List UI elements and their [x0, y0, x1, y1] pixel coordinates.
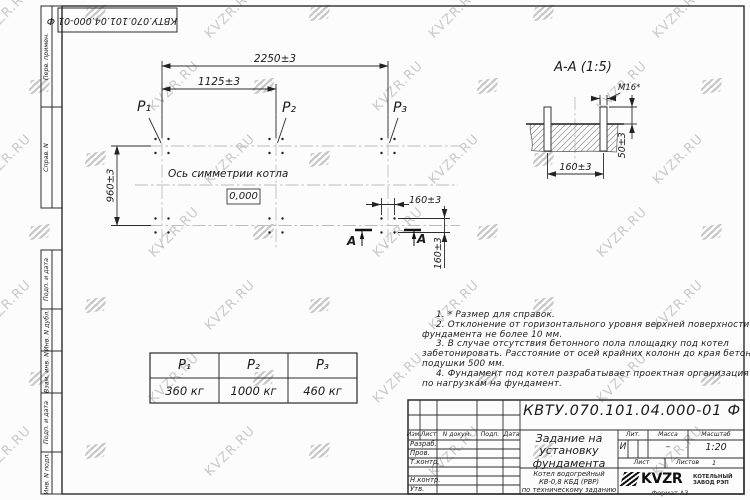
margin-label-podp-i-data-2: Подп. и дата — [41, 393, 52, 452]
kvzr-logo-text: KVZR — [641, 471, 682, 487]
title-name-line: установку — [520, 445, 618, 457]
frame-lines — [41, 6, 744, 494]
drawing-lineart — [0, 0, 750, 500]
tb-row-nkontr: Н.контр. — [410, 477, 440, 484]
tb-row-tkontr: Т.контр. — [410, 459, 439, 466]
tb-mass-label: Масса — [648, 432, 688, 439]
load-table-header-row: P₁ P₂ P₃ — [150, 353, 357, 378]
tb-sheets-label: Листов — [665, 460, 710, 467]
load-point-label-p2: P₂ — [276, 101, 302, 116]
load-table-header-p2: P₂ — [219, 353, 288, 378]
title-block-doc-number: КВТУ.070.101.04.000-01 Ф — [522, 404, 742, 420]
kvzr-logo-caption: КОТЕЛЬНЫЙ ЗАВОД РЭП — [693, 474, 733, 486]
section-dim-protrusion: 50±3 — [618, 125, 628, 165]
drawing-sheet: KVZR.RUKVZR.RUKVZR.RUKVZR.RUKVZR.RUKVZR.… — [0, 0, 750, 500]
load-point-label-p1: P₁ — [131, 100, 157, 115]
dim-total-width: 2250±3 — [235, 54, 315, 66]
title-block-name: Задание на установку фундамента — [520, 433, 618, 470]
margin-label-sprav-n: Справ. N — [41, 107, 52, 208]
section-letter-right: А — [417, 233, 426, 246]
corner-stamp-doc-number: КВТУ.070.101.04.000-01 Ф — [58, 8, 177, 32]
tb-mass-value: – — [648, 443, 688, 453]
tb-sheet-label: Лист — [618, 460, 665, 467]
tb-scale-label: Масштаб — [688, 432, 744, 439]
title-block-product: Котел водогрейный КВ-0,8 КБД (РВР) по те… — [520, 470, 618, 495]
anchor-bolt-thread-label: M16* — [618, 84, 640, 93]
anchor-bolt-dots — [154, 138, 395, 234]
section-letter-left: А — [347, 235, 356, 248]
tb-col-ndok: N докум. — [437, 432, 477, 439]
tb-row-razrab: Разраб. — [410, 441, 437, 448]
section-view-title: А-А (1:5) — [538, 61, 628, 75]
elevation-mark-value: 0,000 — [227, 191, 260, 202]
margin-label-vzam-inv-n: Взам. инв. N — [41, 351, 52, 393]
tb-lit-value: И — [618, 443, 628, 453]
load-table-header-p3: P₃ — [288, 353, 357, 378]
section-dim-bolt-spacing: 160±3 — [548, 163, 603, 173]
boiler-symmetry-axis-label: Ось симметрии котла — [168, 169, 278, 181]
load-table-header-p1: P₁ — [150, 353, 219, 378]
tb-col-data: Дата — [503, 432, 520, 439]
margin-label-inv-n-dubl: Инв. N дубл. — [41, 309, 52, 351]
tb-sheets-value: 1 — [712, 460, 716, 467]
tb-col-list: Лист — [418, 432, 439, 439]
load-table-value-row: 360 кг 1000 кг 460 кг — [150, 378, 357, 403]
tb-scale-value: 1:20 — [688, 443, 744, 453]
load-table: P₁ P₂ P₃ 360 кг 1000 кг 460 кг — [150, 353, 357, 403]
product-line: КВ-0,8 КБД (РВР) — [520, 478, 618, 486]
kvzr-caption-line2: ЗАВОД РЭП — [693, 480, 733, 486]
tb-row-prov: Пров. — [410, 450, 430, 457]
load-point-label-p3: P₃ — [387, 101, 413, 116]
product-line: Котел водогрейный — [520, 470, 618, 478]
dim-half-width: 1125±3 — [179, 77, 259, 89]
title-name-line: фундамента — [520, 458, 618, 470]
margin-label-perv-primen: Перв. примен. — [41, 6, 52, 107]
format-note: Формат А3 — [640, 490, 700, 497]
dim-depth: 960±3 — [106, 166, 117, 206]
product-line: по техническому заданию — [520, 486, 618, 494]
tb-lit-label: Лит. — [618, 432, 648, 439]
dim-bolt-spacing-horizontal: 160±3 — [409, 196, 441, 206]
technical-notes: 1. * Размер для справок. 2. Отклонение о… — [422, 311, 742, 389]
load-table-value-p1: 360 кг — [150, 378, 219, 403]
margin-label-inv-n-podl: Инв. N подл. — [41, 452, 52, 494]
load-table-value-p3: 460 кг — [288, 378, 357, 403]
note-line: по нагрузкам на фундамент. — [422, 380, 742, 390]
tb-col-podp: Подп. — [477, 432, 503, 439]
dim-bolt-spacing-vertical: 160±3 — [434, 233, 444, 273]
load-table-value-p2: 1000 кг — [219, 378, 288, 403]
tb-row-utv: Утв. — [410, 486, 424, 493]
margin-label-podp-i-data-1: Подп. и дата — [41, 250, 52, 309]
